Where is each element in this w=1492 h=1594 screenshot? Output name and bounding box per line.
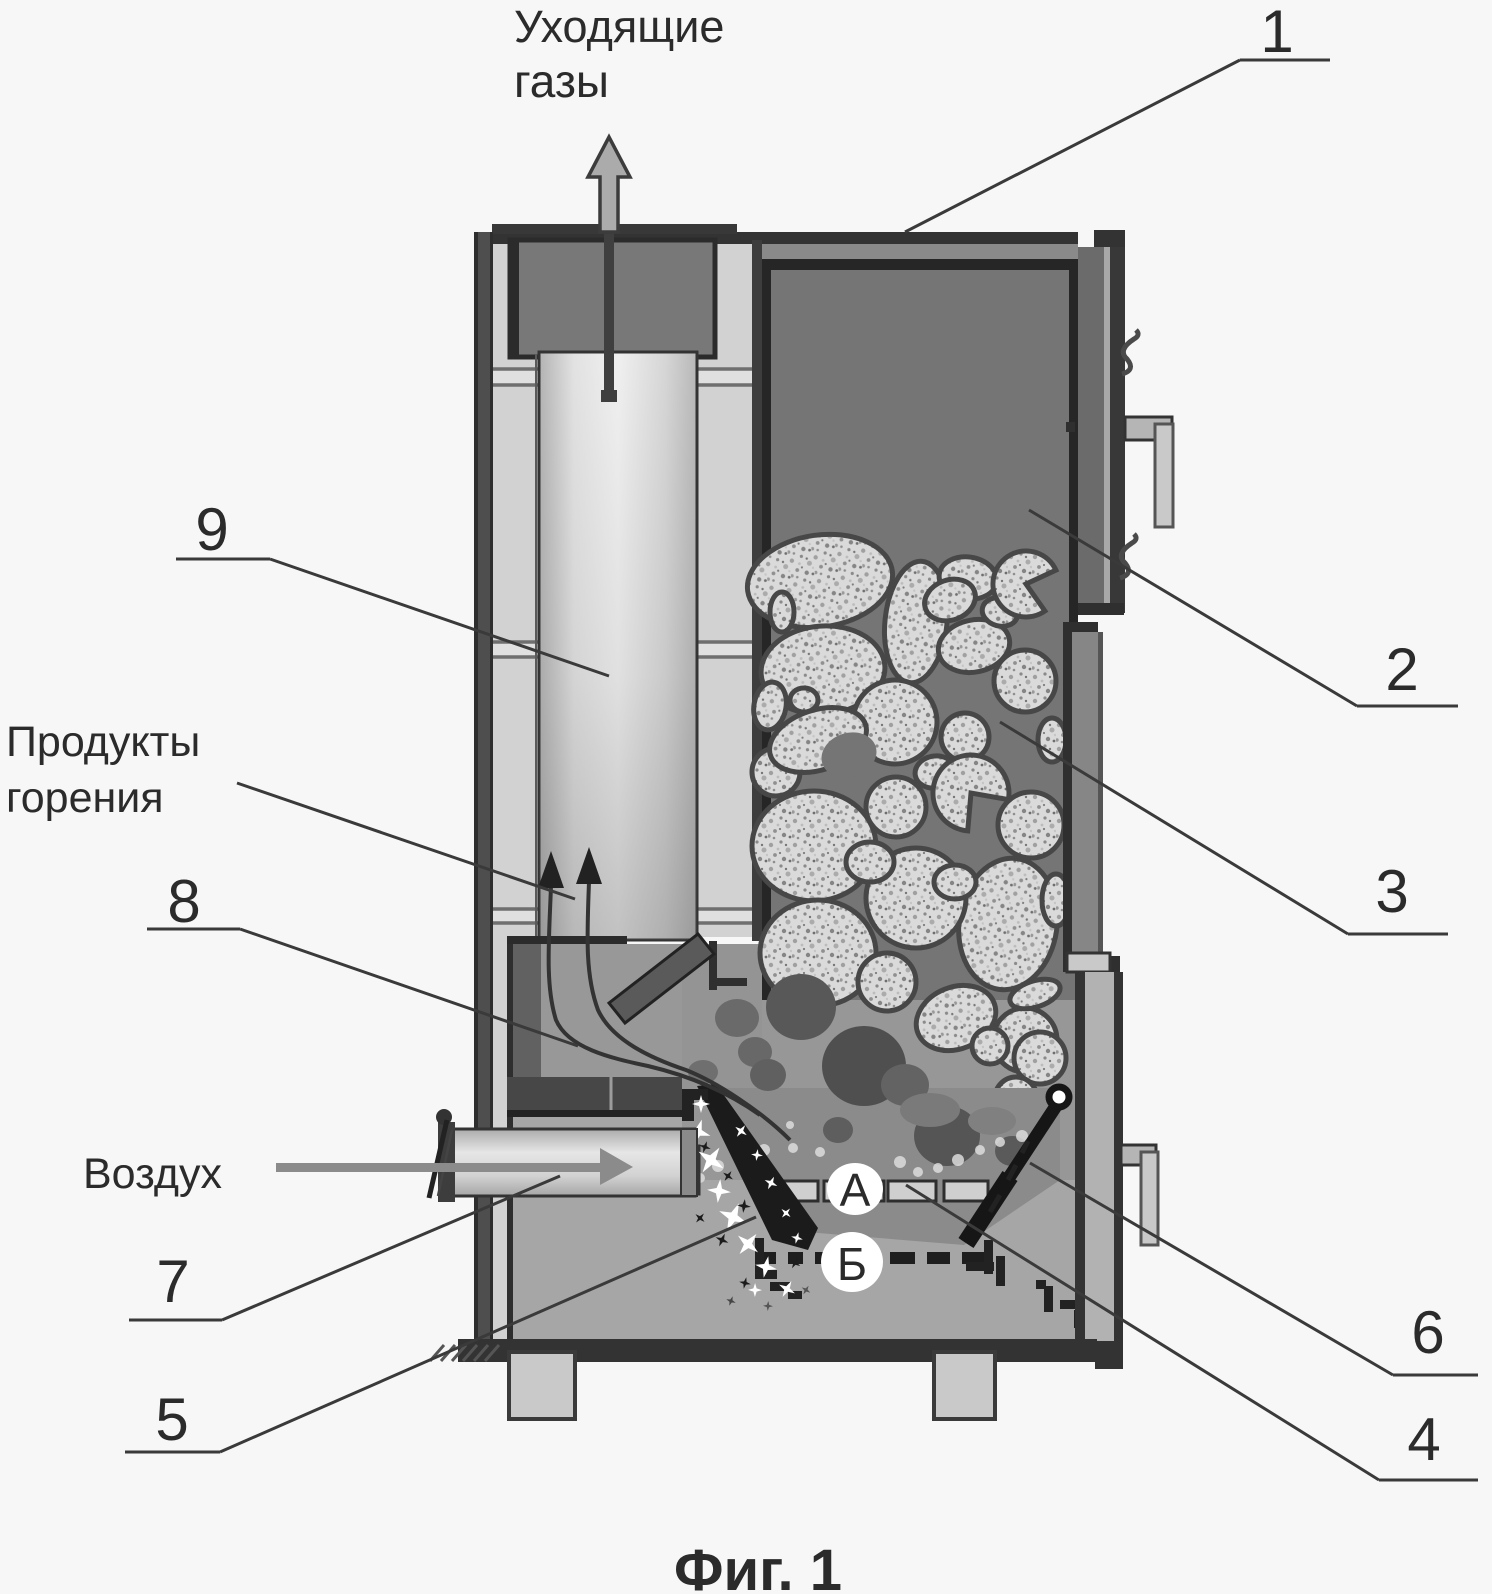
svg-text:горения: горения xyxy=(6,774,164,822)
svg-text:Воздух: Воздух xyxy=(83,1150,222,1198)
svg-text:газы: газы xyxy=(514,55,609,107)
svg-text:А: А xyxy=(840,1164,871,1216)
svg-text:7: 7 xyxy=(156,1248,189,1315)
svg-text:4: 4 xyxy=(1407,1406,1440,1473)
svg-text:2: 2 xyxy=(1385,636,1418,703)
svg-text:Уходящие: Уходящие xyxy=(514,1,724,52)
svg-text:Б: Б xyxy=(837,1238,867,1290)
svg-text:Фиг. 1: Фиг. 1 xyxy=(674,1538,842,1594)
svg-text:Продукты: Продукты xyxy=(6,718,200,766)
svg-text:1: 1 xyxy=(1260,0,1293,65)
svg-text:9: 9 xyxy=(195,496,228,563)
svg-text:5: 5 xyxy=(155,1386,188,1453)
svg-text:6: 6 xyxy=(1411,1299,1444,1366)
svg-text:8: 8 xyxy=(167,868,200,935)
svg-text:3: 3 xyxy=(1375,858,1408,925)
